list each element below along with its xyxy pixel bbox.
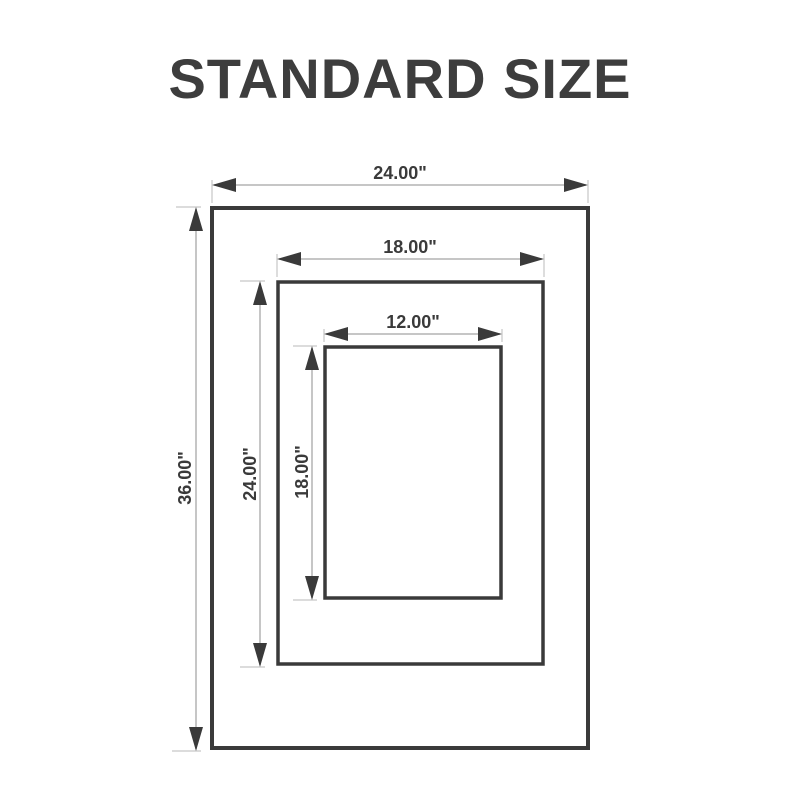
middle-height-label: 24.00" [240, 447, 260, 501]
arrow-left-icon [212, 178, 236, 192]
inner-width-label: 12.00" [386, 312, 440, 332]
inner-frame-rect [325, 347, 501, 598]
arrow-up-icon [189, 207, 203, 231]
arrow-right-icon [564, 178, 588, 192]
outer-height-label: 36.00" [175, 451, 195, 505]
page: STANDARD SIZE 24.00" 18.00" [0, 0, 800, 800]
frames-group [212, 208, 588, 748]
standard-size-diagram: 24.00" 18.00" 12.00" 36.00" [0, 0, 800, 800]
outer-width-dimension: 24.00" [212, 163, 588, 203]
arrow-down-icon [189, 727, 203, 751]
outer-height-dimension: 36.00" [172, 207, 203, 751]
inner-height-label: 18.00" [292, 445, 312, 499]
outer-width-label: 24.00" [373, 163, 427, 183]
middle-width-label: 18.00" [383, 237, 437, 257]
